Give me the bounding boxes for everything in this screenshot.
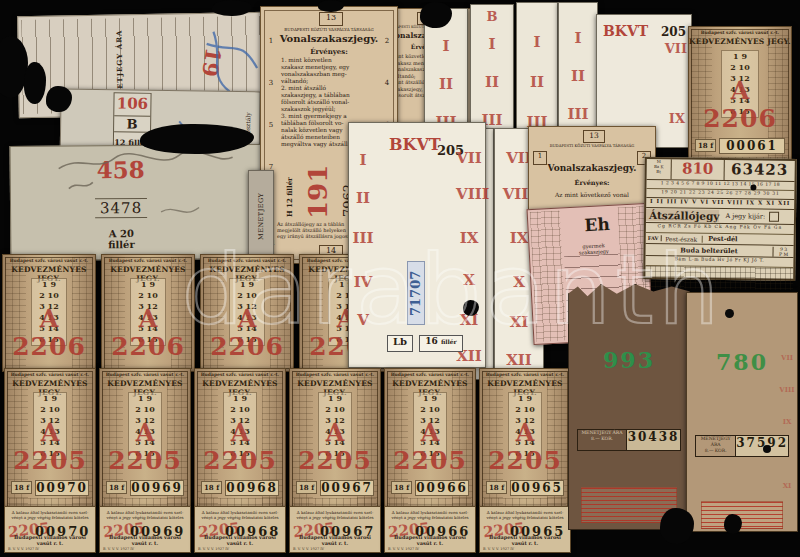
roman-numeral: IX bbox=[669, 111, 685, 126]
grid-pattern bbox=[530, 211, 567, 342]
stub-instructions: A kalauz által lyukasztandó ezen szel- v… bbox=[9, 510, 91, 520]
stamped-serial: 71707 bbox=[407, 261, 425, 325]
roman-numeral: I bbox=[471, 35, 513, 53]
ticket-kedvezmenyes-2205: Budapest szfv. városi vasút r.-t. KEDVEZ… bbox=[194, 368, 286, 510]
roman-numeral: VIII bbox=[456, 185, 482, 203]
ticket-stub-2205: A kalauz által lyukasztandó ezen szel- v… bbox=[4, 506, 96, 553]
company-name: Budapest szfv. városi vasút r.-t. bbox=[482, 372, 568, 377]
serial-number: 00968 bbox=[225, 480, 279, 496]
series-letter: A bbox=[480, 418, 570, 447]
check-box bbox=[769, 212, 779, 222]
roman-numeral: III bbox=[559, 105, 597, 123]
ticket-kedvezmenyes-2205: Budapest szfv. városi vasút r.-t. KEDVEZ… bbox=[479, 368, 571, 510]
ticket-number: 2205 bbox=[290, 446, 380, 475]
torn-edge bbox=[660, 508, 694, 544]
brand-bkvt: BKVT bbox=[389, 135, 441, 154]
company-name: Budapest szfv. városi vasút r.-t. bbox=[102, 372, 188, 377]
company-name: Budapesti villamos városi vasút r. t. bbox=[387, 534, 473, 546]
ticket-title: KEDVEZMÉNYES JEGY. bbox=[689, 37, 791, 46]
serial-number: 37592 bbox=[736, 436, 788, 456]
section-number: 3 bbox=[265, 79, 277, 87]
print-code: B. V. V. V. 1927 IV bbox=[293, 547, 324, 551]
ticket-993: 993 MENETJEGY ÁRA 8.— KOR. 30438 bbox=[568, 284, 690, 530]
print-code: B. V. V. V. 1927 IV bbox=[483, 547, 514, 551]
fare-amount: 16 bbox=[425, 336, 438, 346]
ticket-kedvezmenyes-2206: Budapest szfv. városi vasút r.-t. KEDVEZ… bbox=[200, 254, 294, 372]
ticket-bkvt-205-center: BKVT 205 I II III IV V VII VIII IX X XI … bbox=[348, 122, 486, 368]
section-number: 1 bbox=[265, 37, 277, 45]
company-name: Budapest szfv. városi vasút r.-t. bbox=[292, 372, 378, 377]
brand-bkvt: BKVT bbox=[603, 23, 648, 39]
price-code: 18 f bbox=[201, 481, 222, 494]
serial-number: 00969 bbox=[130, 480, 184, 496]
section-number: 5 bbox=[265, 121, 277, 129]
series-letter: A bbox=[290, 418, 380, 447]
conditions-line: Az mint következő vonal bbox=[529, 191, 655, 198]
stub-instructions: A kalauz által lyukasztandó ezen szel- v… bbox=[104, 510, 186, 520]
roman-numeral: II bbox=[559, 67, 597, 85]
roman-numeral: II bbox=[425, 75, 467, 93]
fare-label: MENETJEGY ÁRA bbox=[701, 436, 731, 447]
fare-serial-row: MENETJEGY ÁRA 8.— KOR. 30438 bbox=[577, 429, 681, 451]
ticket-kedvezmenyes-2206-tr: Budapest szfv. városi vasút r.-t. KEDVEZ… bbox=[688, 26, 792, 172]
roman-numeral: XII bbox=[495, 351, 543, 369]
ticket-number: 2205 bbox=[385, 446, 475, 475]
serial-number: 00970 bbox=[35, 480, 89, 496]
ticket-number: 993 bbox=[569, 347, 689, 373]
ticket-row-2206: Budapest szfv. városi vasút r.-t. KEDVEZ… bbox=[2, 254, 393, 372]
ticket-number: 2205 bbox=[100, 446, 190, 475]
fare-label: MENETJEGY ÁRA bbox=[581, 430, 622, 435]
ticket-kedvezmenyes-2205: Budapest szfv. városi vasút r.-t. KEDVEZ… bbox=[289, 368, 381, 510]
price-code: 18 f bbox=[11, 481, 32, 494]
print-code: B. V. V. V. 1927 IV bbox=[8, 547, 39, 551]
fare-amount: 8.— KOR. bbox=[591, 436, 613, 441]
ticket-kedvezmenyes-2205: Budapest szfv. városi vasút r.-t. KEDVEZ… bbox=[384, 368, 476, 510]
serial-number: 00061 bbox=[719, 138, 785, 154]
header-row: M Ba K Bt 810 63423 bbox=[647, 159, 795, 182]
ticket-number: 810 bbox=[672, 159, 725, 180]
roman-numeral: II bbox=[471, 73, 513, 91]
roman-numeral: IX bbox=[779, 417, 795, 426]
fare: 16 fillér bbox=[419, 335, 463, 352]
roman-numeral: VII bbox=[665, 41, 687, 56]
series-letter: A bbox=[195, 418, 285, 447]
print-code: B. V. V. V. 1927 IV bbox=[198, 547, 229, 551]
stub-label: MENETJEGY bbox=[257, 177, 273, 255]
ticket-stub-2205: A kalauz által lyukasztandó ezen szel- v… bbox=[384, 506, 476, 553]
roman-numeral: I bbox=[517, 33, 557, 51]
company-name: Budapesti villamos városi vasút r. t. bbox=[482, 534, 568, 546]
section-number: 4 bbox=[381, 79, 393, 87]
ticket-title: Vonalszakaszjegy. bbox=[261, 33, 397, 44]
corner-cells: 9 3 P M bbox=[772, 246, 793, 256]
company-name: BUDAPESTI KÖZÚTI VASPÁLYA TÁRSASÁG bbox=[529, 143, 655, 148]
class-code: Eh bbox=[584, 214, 610, 235]
print-code: B. V. V. V. 1927 IV bbox=[103, 547, 134, 551]
roman-numeral: I bbox=[559, 29, 597, 47]
fare-amount: 8.— KOR. bbox=[705, 448, 727, 453]
series-letter: A bbox=[201, 304, 293, 333]
ticket-row-2205: Budapest szfv. városi vasút r.-t. KEDVEZ… bbox=[4, 368, 571, 510]
series-number: 13 bbox=[319, 12, 343, 26]
line-number: 205 bbox=[661, 25, 686, 39]
ticket-strip-3: I II III bbox=[516, 2, 558, 146]
company-name: Budapest szfv. városi vasút r.-t. bbox=[691, 30, 789, 35]
company-name: Budapest szfv. városi vasút r.-t. bbox=[5, 258, 93, 263]
fare: MENETJEGY ÁRA 8.— KOR. bbox=[696, 436, 736, 456]
price-code: 18 f bbox=[296, 481, 317, 494]
ticket-kedvezmenyes-2206: Budapest szfv. városi vasút r.-t. KEDVEZ… bbox=[101, 254, 195, 372]
ticket-number: 2206 bbox=[3, 332, 95, 361]
serial-number: 00967 bbox=[320, 480, 374, 496]
roman-numeral: IV bbox=[352, 273, 374, 291]
ticket-number: 2205 bbox=[5, 446, 95, 475]
ticket-collage-photo: MENETJEGY ÁRA 60 f. 19 13 BUDAPESTI KÖZÚ… bbox=[0, 0, 800, 557]
ticket-number: 2205 bbox=[480, 446, 570, 475]
section-number: 2 bbox=[381, 37, 393, 45]
serial-row: 18 f 00968 bbox=[201, 479, 279, 496]
ticket-number: 2206 bbox=[102, 332, 194, 361]
series-letter: A bbox=[5, 418, 95, 447]
roman-numeral: II bbox=[517, 73, 557, 91]
price-code: 18 f bbox=[106, 481, 127, 494]
company-name: Budapesti villamos városi vasút r. t. bbox=[102, 534, 188, 546]
roman-numeral: I bbox=[425, 37, 467, 55]
company-name: Budapest szfv. városi vasút r.-t. bbox=[387, 372, 473, 377]
roman-numeral: VII bbox=[456, 149, 482, 167]
company-name: Budapest szfv. városi vasút r.-t. bbox=[7, 372, 93, 377]
fav-label: FAV bbox=[646, 235, 662, 241]
ticket-title: Átszállójegy bbox=[646, 209, 720, 222]
company-name: Budapest szfv. városi vasút r.-t. bbox=[197, 372, 283, 377]
stub-instructions: A kalauz által lyukasztandó ezen szel- v… bbox=[389, 510, 471, 520]
ticket-vonalszakaszjegy-small: 13 BUDAPESTI KÖZÚTI VASPÁLYA TÁRSASÁG Vo… bbox=[528, 126, 656, 210]
series-letter: A bbox=[100, 418, 190, 447]
ticket-kedvezmenyes-2205: Budapest szfv. városi vasút r.-t. KEDVEZ… bbox=[99, 368, 191, 510]
series-number: 13 bbox=[583, 130, 605, 143]
roman-numeral: IX bbox=[456, 229, 482, 247]
price-code: 18 f bbox=[695, 139, 716, 152]
ticket-strip-4: I II III bbox=[558, 2, 598, 134]
serial-row: 18 f 00969 bbox=[106, 479, 184, 496]
roman-numeral: II bbox=[352, 189, 374, 207]
series-letter: A bbox=[102, 304, 194, 333]
roman-numeral: V bbox=[352, 311, 374, 329]
company-name: Budapesti villamos városi vasút r. t. bbox=[7, 534, 93, 546]
ticket-stub-2205: A kalauz által lyukasztandó ezen szel- v… bbox=[99, 506, 191, 553]
corner-codes: M Ba K Bt bbox=[647, 159, 672, 179]
punch-hole bbox=[750, 184, 756, 190]
company-name: Budapesti villamos városi vasút r. t. bbox=[197, 534, 283, 546]
section-number: 1 bbox=[533, 151, 547, 165]
roman-numeral: III bbox=[352, 229, 374, 247]
class-code: Lb bbox=[387, 335, 413, 352]
valid-label: Érvényes: bbox=[261, 47, 397, 56]
serial-row: 18 f 00970 bbox=[11, 479, 89, 496]
print-code: B. V. V. V. 1927 IV bbox=[388, 547, 419, 551]
company-name: Budapest szfv. városi vasút r.-t. bbox=[203, 258, 291, 263]
grid-pattern bbox=[645, 266, 793, 290]
stub-instructions: A kalauz által lyukasztandó ezen szel- v… bbox=[294, 510, 376, 520]
dest-north: Pest-észak bbox=[661, 235, 702, 243]
serial-row: 18 f 00966 bbox=[391, 479, 469, 496]
serial-number: 00966 bbox=[415, 480, 469, 496]
stub-row-2205: A kalauz által lyukasztandó ezen szel- v… bbox=[4, 506, 571, 553]
stub-instructions: A kalauz által lyukasztandó ezen szel- v… bbox=[199, 510, 281, 520]
roman-numeral: X bbox=[456, 271, 482, 289]
ticket-780: 780 VII VIII IX X XI MENETJEGY ÁRA 8.— K… bbox=[686, 292, 798, 532]
series-letter: A bbox=[385, 418, 475, 447]
punch-hole bbox=[725, 309, 734, 318]
roman-numeral: VII bbox=[779, 353, 795, 362]
company-name: BUDAPESTI KÖZÚTI VASPÁLYA TÁRSASÁG bbox=[261, 27, 397, 32]
ticket-grey-stub: MENETJEGY bbox=[248, 170, 274, 260]
series-letter: A bbox=[3, 304, 95, 333]
fare-unit: fillér bbox=[441, 338, 457, 345]
ticket-kedvezmenyes-2205: Budapest szfv. városi vasút r.-t. KEDVEZ… bbox=[4, 368, 96, 510]
serial-row: 18 f 00967 bbox=[296, 479, 374, 496]
ticket-number: 191 bbox=[303, 157, 333, 219]
ticket-menetjegy-458: 458 3478 A 20 fillér MENETJEGY bbox=[10, 144, 265, 261]
valid-label: Érvényes: bbox=[529, 179, 655, 187]
fare-serial-row: MENETJEGY ÁRA 8.— KOR. 37592 bbox=[695, 435, 789, 457]
ticket-number: 2205 bbox=[195, 446, 285, 475]
punch-hole bbox=[763, 445, 771, 453]
series-letter: B bbox=[471, 9, 513, 24]
handwriting-mark bbox=[11, 145, 266, 262]
dest-south: Pest-dél bbox=[702, 235, 743, 244]
ticket-stub-2205: A kalauz által lyukasztandó ezen szel- v… bbox=[289, 506, 381, 553]
red-conditions-block bbox=[701, 501, 783, 529]
roman-numeral: XI bbox=[779, 481, 795, 490]
serial-number: 63423 bbox=[725, 160, 795, 181]
stub-instructions: A kalauz által lyukasztandó ezen szel- v… bbox=[484, 510, 566, 520]
ticket-stub-2205: A kalauz által lyukasztandó ezen szel- v… bbox=[479, 506, 571, 553]
serial-row: 18 f 00965 bbox=[486, 479, 564, 496]
roman-numeral: I bbox=[352, 151, 374, 169]
ticket-atszallojegy: M Ba K Bt 810 63423 1 2 3 4 5 6 7 8 9 10… bbox=[643, 157, 797, 281]
serial-number: 00965 bbox=[510, 480, 564, 496]
serial-row: 18 f 00061 bbox=[695, 137, 785, 154]
roman-numeral: VIII bbox=[779, 385, 795, 394]
series-letter: A bbox=[689, 76, 791, 105]
serial-number: 30438 bbox=[627, 430, 680, 450]
price-code: 18 f bbox=[486, 481, 507, 494]
company-name: Budapesti villamos városi vasút r. t. bbox=[292, 534, 378, 546]
ticket-stub-2205: A kalauz által lyukasztandó ezen szel- v… bbox=[194, 506, 286, 553]
company-name: Budapest szfv. városi vasút r.-t. bbox=[104, 258, 192, 263]
ticket-number: 2206 bbox=[201, 332, 293, 361]
fare: MENETJEGY ÁRA 8.— KOR. bbox=[578, 430, 627, 450]
dest-buda: Buda belterület bbox=[646, 245, 773, 255]
ticket-kedvezmenyes-2206: Budapest szfv. városi vasút r.-t. KEDVEZ… bbox=[2, 254, 96, 372]
price-code: 18 f bbox=[391, 481, 412, 494]
ticket-number: 2206 bbox=[689, 104, 791, 133]
fare: H 12 fillér bbox=[285, 163, 294, 217]
note-label: A jegy kijár: bbox=[725, 212, 765, 221]
